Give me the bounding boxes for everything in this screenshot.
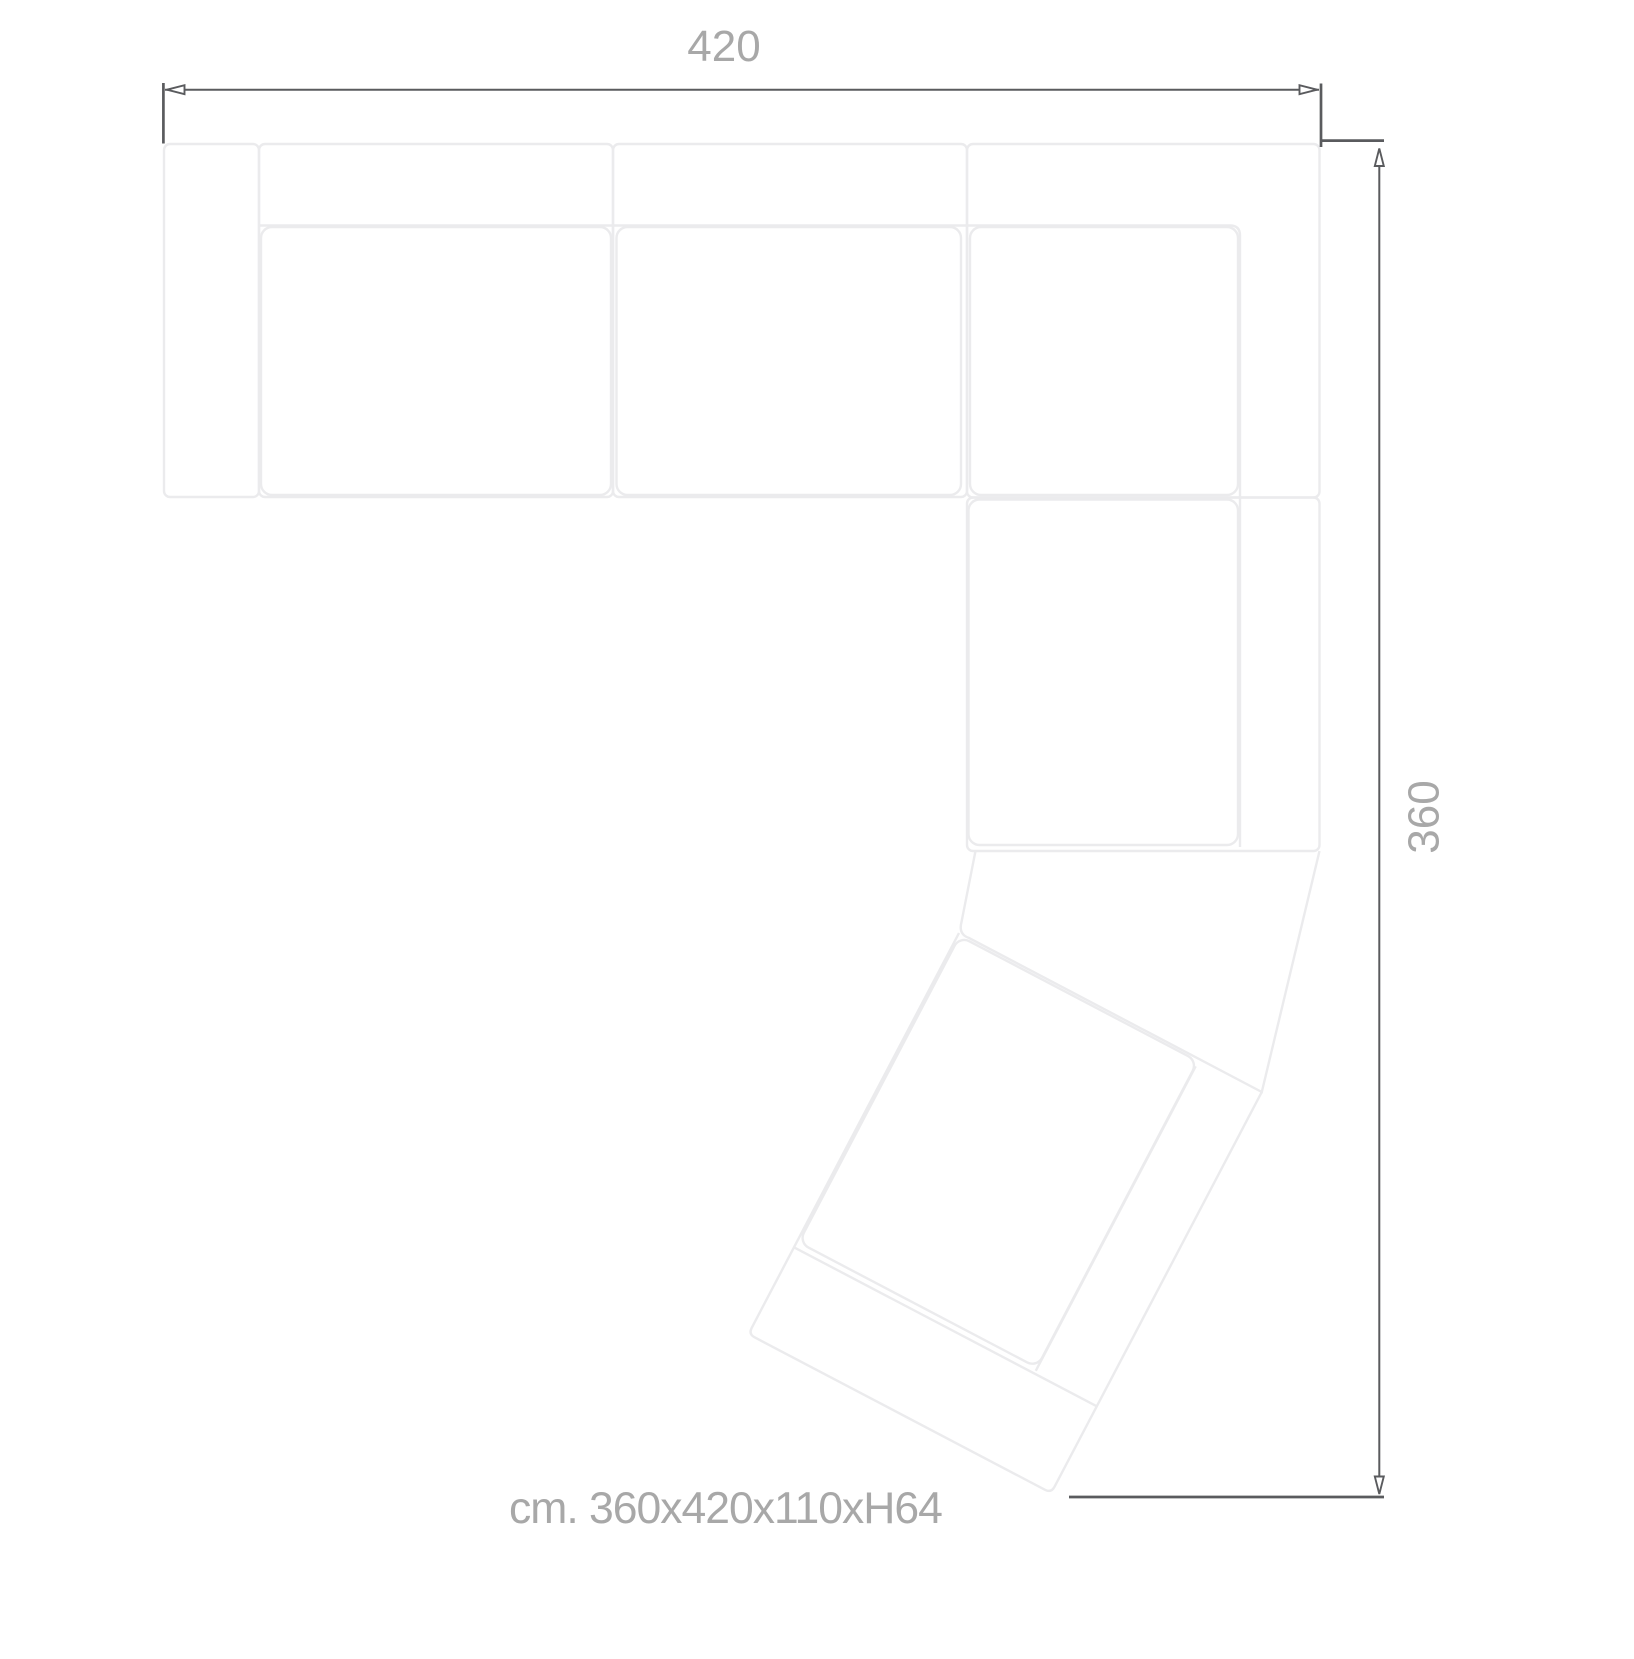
svg-text:420: 420 — [687, 22, 760, 71]
svg-text:cm. 360x420x110xH64: cm. 360x420x110xH64 — [509, 1484, 942, 1533]
svg-text:360: 360 — [1400, 780, 1449, 853]
